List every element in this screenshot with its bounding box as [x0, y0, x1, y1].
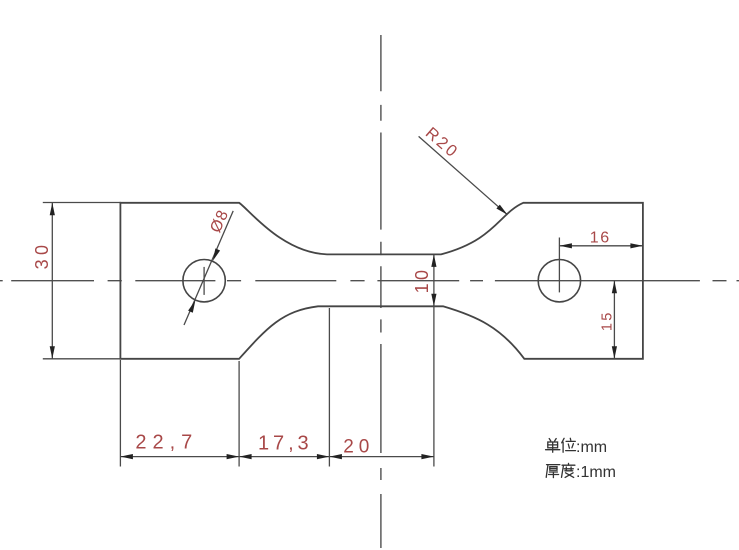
svg-text::1mm: :1mm	[576, 464, 616, 481]
svg-text:22,7: 22,7	[135, 431, 198, 453]
svg-text:15: 15	[599, 310, 615, 331]
svg-text:16: 16	[590, 230, 611, 247]
svg-text:17,3: 17,3	[258, 433, 313, 455]
svg-text:20: 20	[343, 437, 374, 458]
svg-text:10: 10	[412, 267, 432, 294]
svg-text:Ø8: Ø8	[207, 207, 232, 235]
svg-text::mm: :mm	[576, 439, 607, 456]
svg-text:30: 30	[32, 241, 52, 270]
